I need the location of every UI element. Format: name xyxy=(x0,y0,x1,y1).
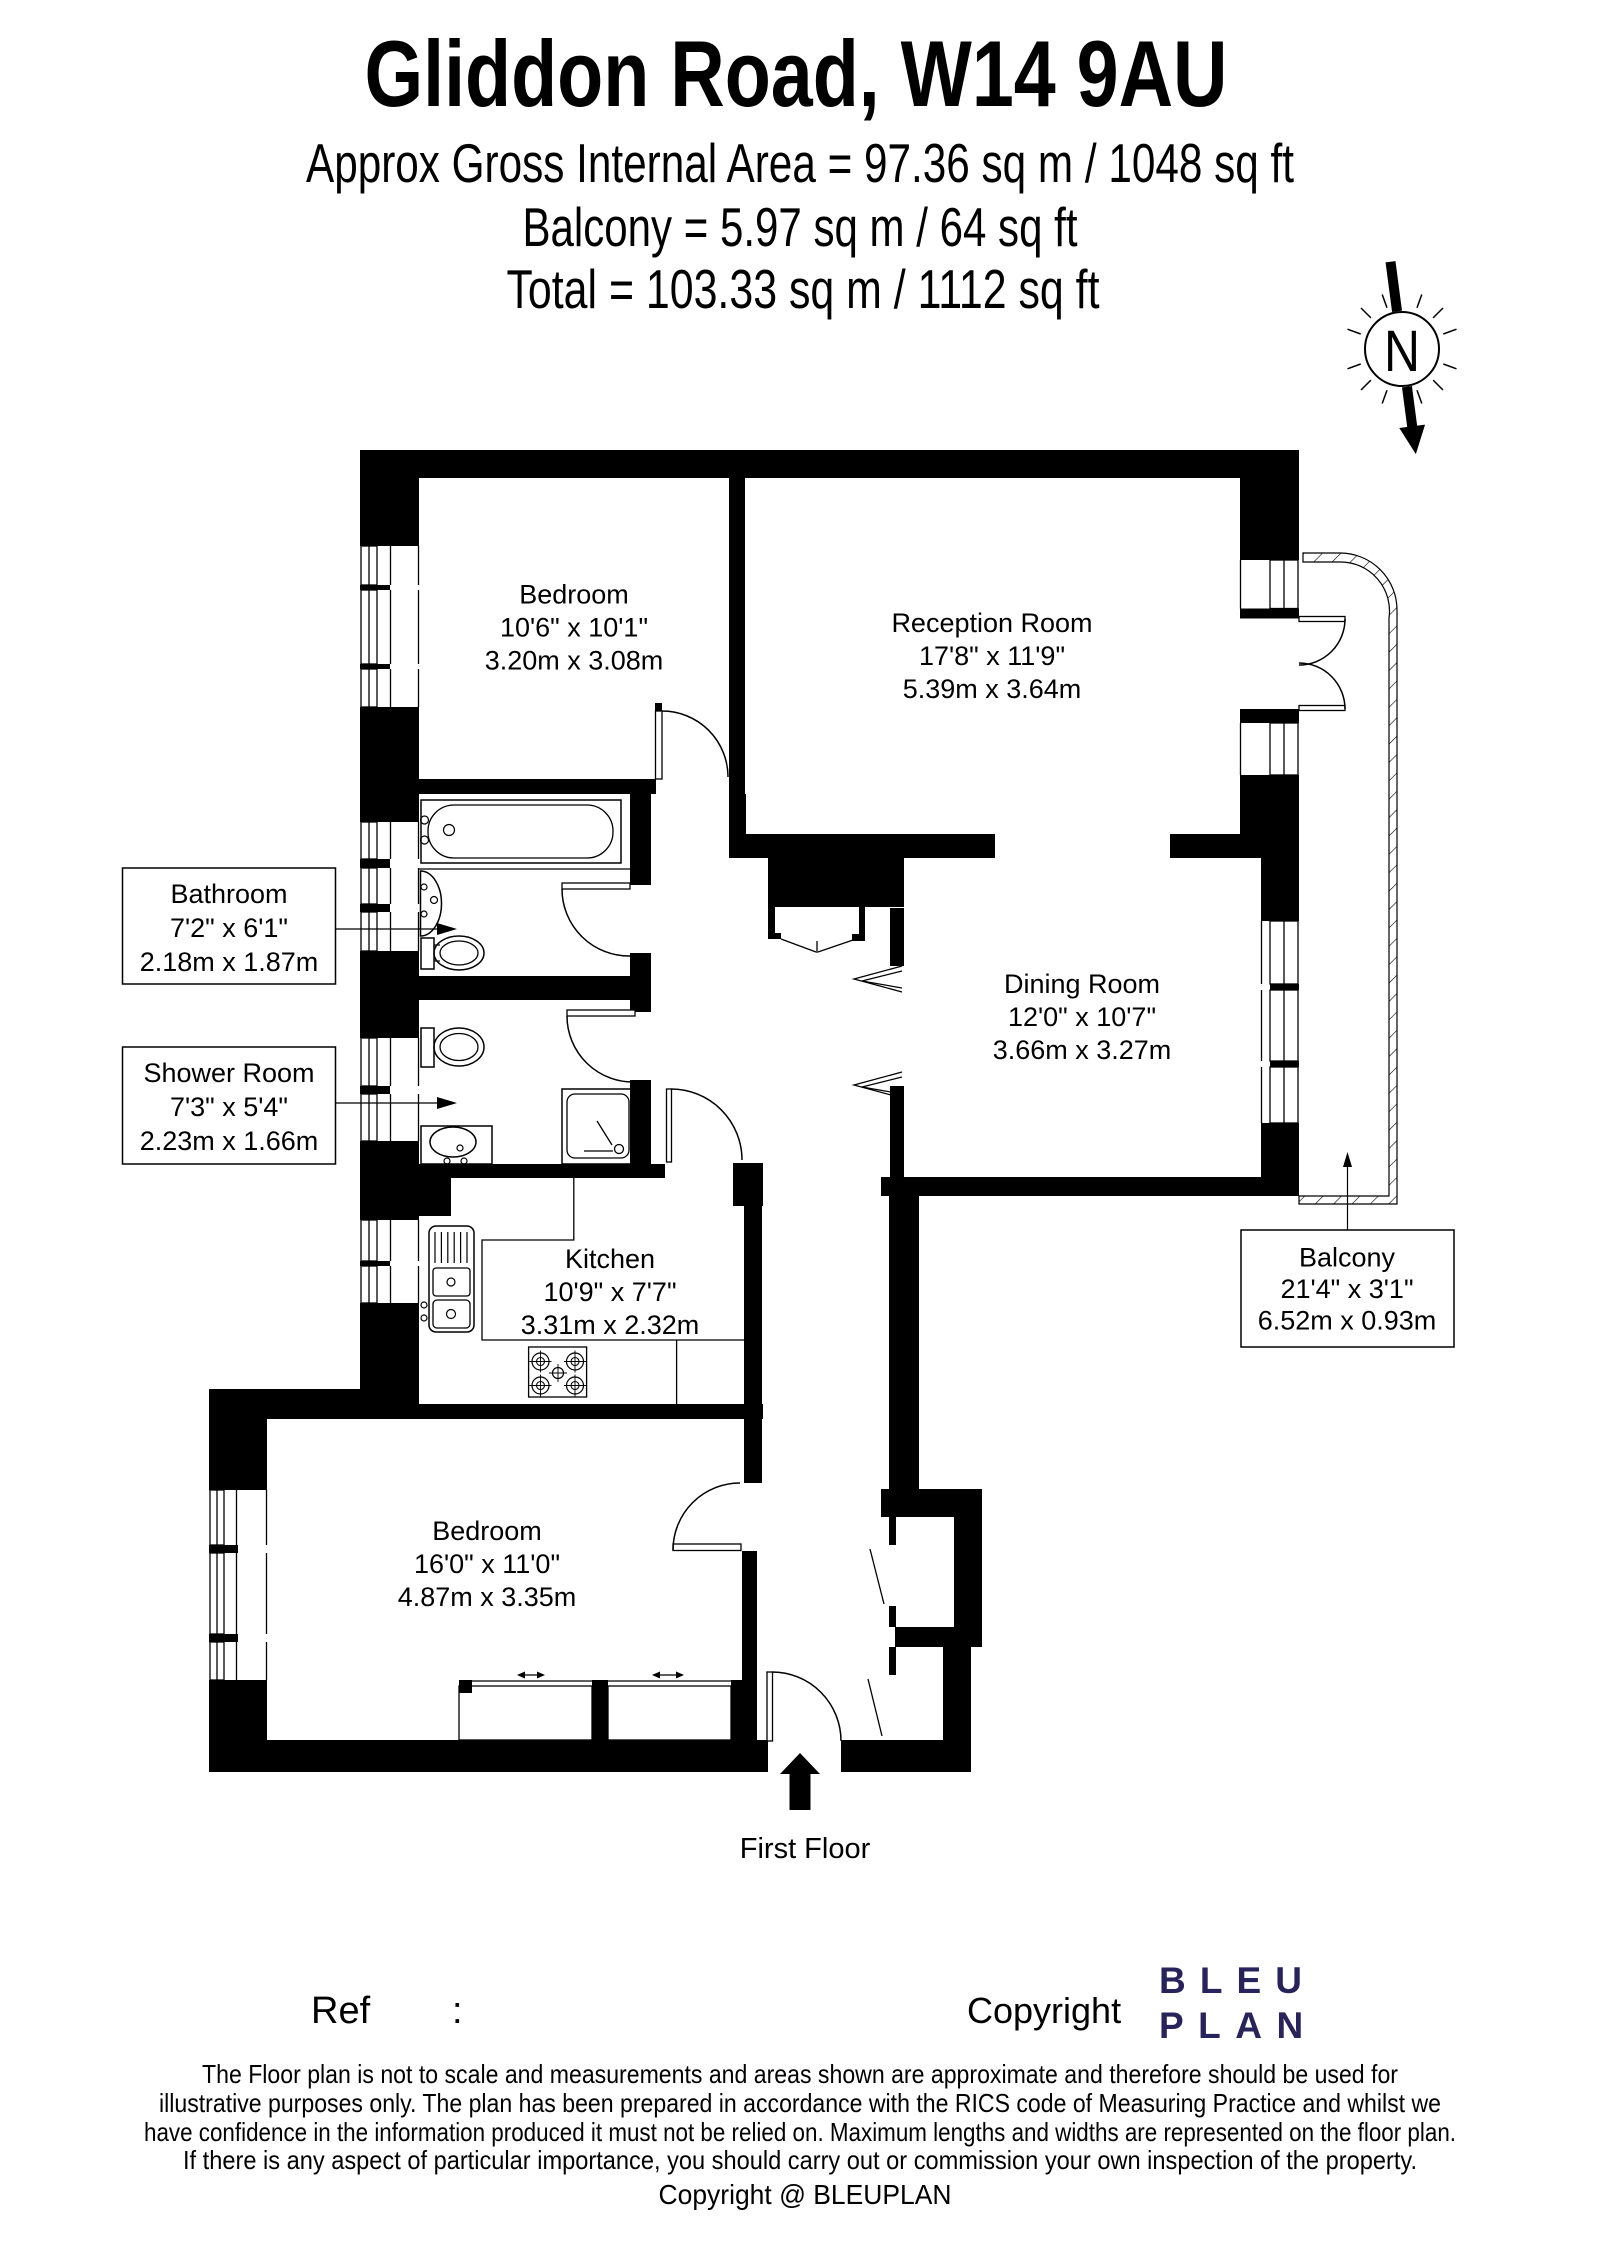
svg-text:10'9" x 7'7": 10'9" x 7'7" xyxy=(543,1277,676,1307)
svg-text:Copyright @ BLEUPLAN: Copyright @ BLEUPLAN xyxy=(659,2179,952,2210)
svg-text:Copyright: Copyright xyxy=(967,1990,1121,2031)
svg-text:7'3" x 5'4": 7'3" x 5'4" xyxy=(170,1092,288,1122)
svg-text:3.20m x 3.08m: 3.20m x 3.08m xyxy=(485,646,664,676)
svg-text:Bedroom: Bedroom xyxy=(519,580,629,610)
svg-text:10'6" x 10'1": 10'6" x 10'1" xyxy=(500,613,648,643)
svg-text:5.39m x 3.64m: 5.39m x 3.64m xyxy=(903,674,1082,704)
svg-text:First Floor: First Floor xyxy=(740,1833,871,1865)
svg-text:12'0" x 10'7": 12'0" x 10'7" xyxy=(1008,1002,1156,1032)
svg-text:16'0" x 11'0": 16'0" x 11'0" xyxy=(414,1549,560,1579)
svg-text:2.18m x 1.87m: 2.18m x 1.87m xyxy=(140,947,319,977)
svg-text:3.66m x 3.27m: 3.66m x 3.27m xyxy=(993,1035,1172,1065)
svg-text:Gliddon Road, W14 9AU: Gliddon Road, W14 9AU xyxy=(365,21,1228,126)
svg-text:Ref: Ref xyxy=(311,1990,371,2032)
svg-text:Balcony = 5.97 sq m / 64 sq ft: Balcony = 5.97 sq m / 64 sq ft xyxy=(523,196,1078,258)
svg-text:Bathroom: Bathroom xyxy=(170,879,287,909)
svg-text:have confidence in the informa: have confidence in the information produ… xyxy=(144,2117,1456,2147)
svg-text:21'4" x 3'1": 21'4" x 3'1" xyxy=(1280,1274,1413,1304)
svg-text:Balcony: Balcony xyxy=(1299,1243,1396,1273)
svg-text:3.31m x 2.32m: 3.31m x 2.32m xyxy=(521,1310,700,1340)
svg-text:Reception Room: Reception Room xyxy=(891,608,1092,638)
svg-text:17'8" x 11'9": 17'8" x 11'9" xyxy=(919,641,1065,671)
svg-text:Kitchen: Kitchen xyxy=(565,1244,655,1274)
svg-text:6.52m x 0.93m: 6.52m x 0.93m xyxy=(1258,1306,1437,1336)
svg-text:If there is any aspect of part: If there is any aspect of particular imp… xyxy=(183,2145,1417,2175)
svg-text:Dining Room: Dining Room xyxy=(1004,969,1160,999)
svg-text:4.87m x 3.35m: 4.87m x 3.35m xyxy=(398,1582,577,1612)
svg-text:Bedroom: Bedroom xyxy=(432,1516,542,1546)
svg-text:N: N xyxy=(1384,319,1420,384)
svg-text:Approx Gross Internal Area = 9: Approx Gross Internal Area = 97.36 sq m … xyxy=(306,132,1294,194)
svg-text:7'2" x 6'1": 7'2" x 6'1" xyxy=(170,913,288,943)
svg-text:2.23m x 1.66m: 2.23m x 1.66m xyxy=(140,1126,319,1156)
svg-text:PLAN: PLAN xyxy=(1159,2005,1318,2046)
svg-text:The Floor plan is not to scale: The Floor plan is not to scale and measu… xyxy=(202,2059,1398,2089)
svg-text:Total = 103.33 sq m / 1112 sq: Total = 103.33 sq m / 1112 sq ft xyxy=(507,258,1100,320)
svg-text:illustrative purposes only. Th: illustrative purposes only. The plan has… xyxy=(159,2088,1441,2118)
svg-text::: : xyxy=(452,1990,463,2032)
svg-text:Shower Room: Shower Room xyxy=(143,1058,314,1088)
svg-text:BLEU: BLEU xyxy=(1159,1960,1316,2001)
